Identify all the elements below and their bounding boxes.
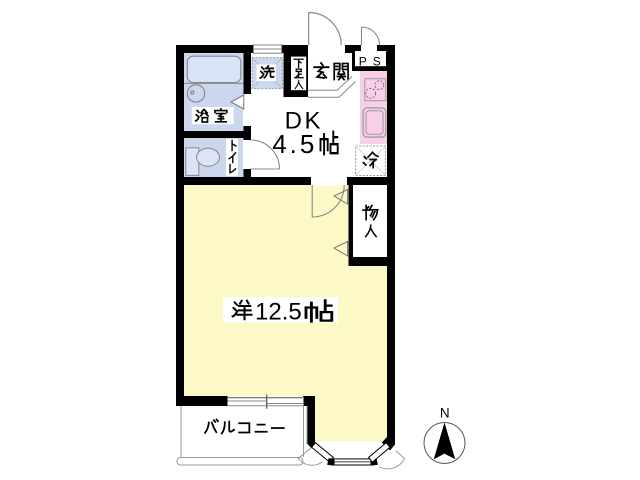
- svg-text:PS: PS: [359, 55, 387, 69]
- svg-text:12.5: 12.5: [255, 298, 302, 325]
- svg-text:4.5: 4.5: [272, 129, 317, 159]
- svg-text:N: N: [440, 406, 450, 421]
